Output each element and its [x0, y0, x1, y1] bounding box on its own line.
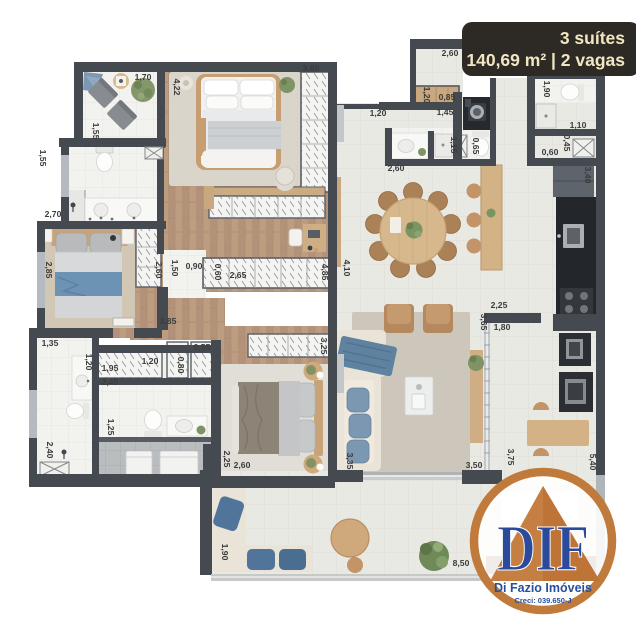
svg-text:2,60: 2,60 — [234, 460, 251, 470]
svg-text:1,95: 1,95 — [102, 363, 119, 373]
svg-text:3,65: 3,65 — [479, 314, 489, 331]
svg-text:3,40: 3,40 — [583, 167, 593, 184]
svg-text:2,85: 2,85 — [44, 262, 54, 279]
svg-text:2,70: 2,70 — [45, 209, 62, 219]
svg-text:2,25: 2,25 — [491, 300, 508, 310]
svg-text:1,55: 1,55 — [91, 123, 101, 140]
svg-text:1,20: 1,20 — [422, 87, 432, 104]
svg-text:2,65: 2,65 — [230, 270, 247, 280]
svg-text:1,90: 1,90 — [220, 544, 230, 561]
svg-text:8,50: 8,50 — [453, 558, 470, 568]
svg-text:4,10: 4,10 — [342, 260, 352, 277]
svg-text:3,75: 3,75 — [506, 449, 516, 466]
svg-text:1,20: 1,20 — [84, 354, 94, 371]
svg-text:1,20: 1,20 — [142, 356, 159, 366]
svg-text:0,55: 0,55 — [194, 342, 211, 352]
svg-text:3,85: 3,85 — [160, 316, 177, 326]
svg-text:0,85: 0,85 — [439, 92, 456, 102]
svg-text:0,60: 0,60 — [542, 147, 559, 157]
svg-text:3 suítes: 3 suítes — [560, 28, 625, 48]
svg-text:1,50: 1,50 — [170, 260, 180, 277]
svg-text:1,90: 1,90 — [542, 81, 552, 98]
svg-text:DIF: DIF — [497, 512, 589, 585]
svg-text:140,69 m² | 2 vagas: 140,69 m² | 2 vagas — [466, 50, 625, 70]
svg-text:1,45: 1,45 — [437, 107, 454, 117]
svg-text:0,80: 0,80 — [176, 357, 186, 374]
svg-text:4,22: 4,22 — [172, 79, 182, 96]
svg-text:3,60: 3,60 — [303, 63, 320, 73]
svg-text:1,80: 1,80 — [494, 322, 511, 332]
svg-text:Di Fazio Imóveis: Di Fazio Imóveis — [494, 581, 592, 595]
svg-text:0,45: 0,45 — [562, 135, 572, 152]
svg-text:2,60: 2,60 — [388, 163, 405, 173]
svg-text:Creci: 039.650-J: Creci: 039.650-J — [514, 596, 571, 605]
svg-text:3,35: 3,35 — [345, 453, 355, 470]
svg-text:1,55: 1,55 — [38, 150, 48, 167]
svg-text:5,40: 5,40 — [588, 454, 598, 471]
svg-text:2,60: 2,60 — [442, 48, 459, 58]
svg-text:1,70: 1,70 — [135, 72, 152, 82]
svg-text:1,25: 1,25 — [106, 419, 116, 436]
svg-text:1,10: 1,10 — [570, 120, 587, 130]
svg-text:2,40: 2,40 — [45, 442, 55, 459]
svg-text:0,60: 0,60 — [213, 264, 223, 281]
svg-text:2,25: 2,25 — [222, 451, 232, 468]
svg-text:3,50: 3,50 — [466, 460, 483, 470]
svg-text:2,45: 2,45 — [102, 377, 119, 387]
svg-text:0,65: 0,65 — [471, 138, 481, 155]
svg-text:0,90: 0,90 — [186, 261, 203, 271]
svg-text:4,85: 4,85 — [320, 264, 330, 281]
svg-text:2,60: 2,60 — [154, 262, 164, 279]
svg-text:3,25: 3,25 — [319, 338, 329, 355]
svg-text:1,20: 1,20 — [370, 108, 387, 118]
svg-text:1,35: 1,35 — [42, 338, 59, 348]
svg-text:1,15: 1,15 — [449, 137, 459, 154]
